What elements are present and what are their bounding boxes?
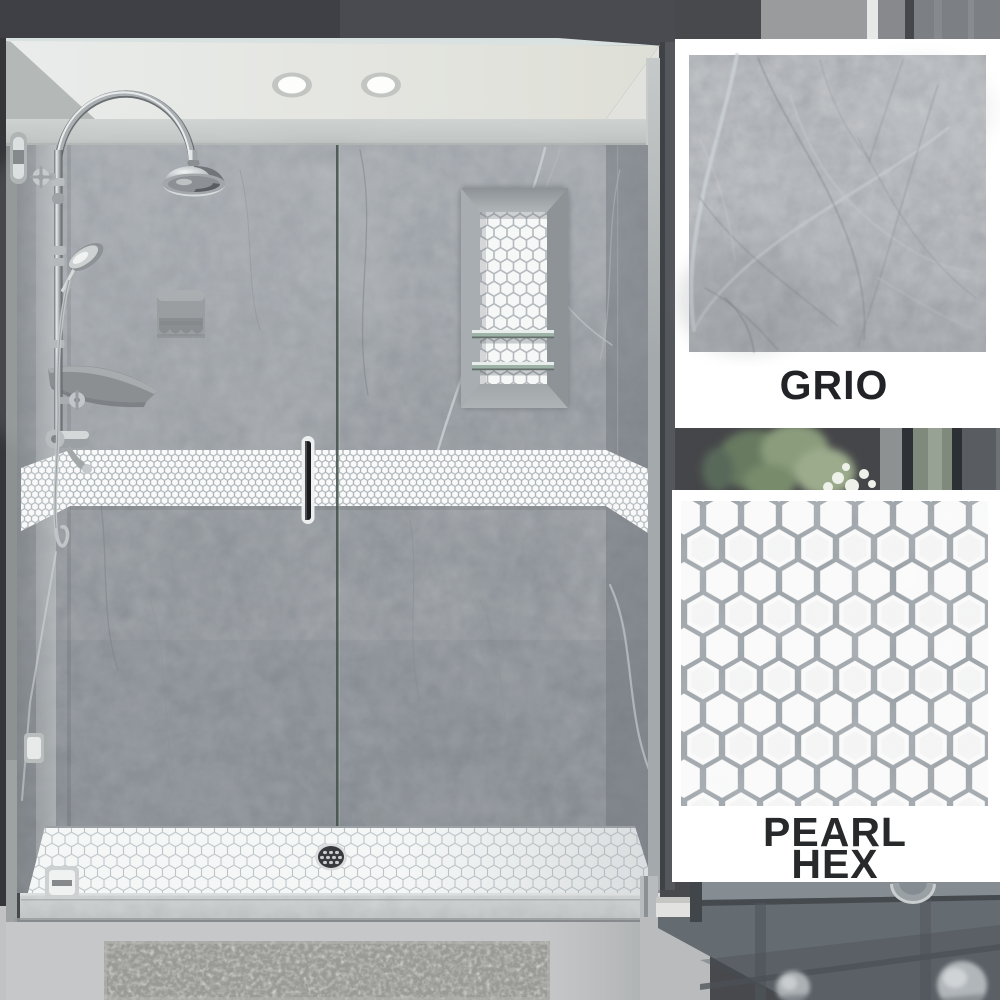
svg-text:GRIO: GRIO: [780, 362, 889, 408]
svg-text:HEX: HEX: [791, 841, 878, 887]
